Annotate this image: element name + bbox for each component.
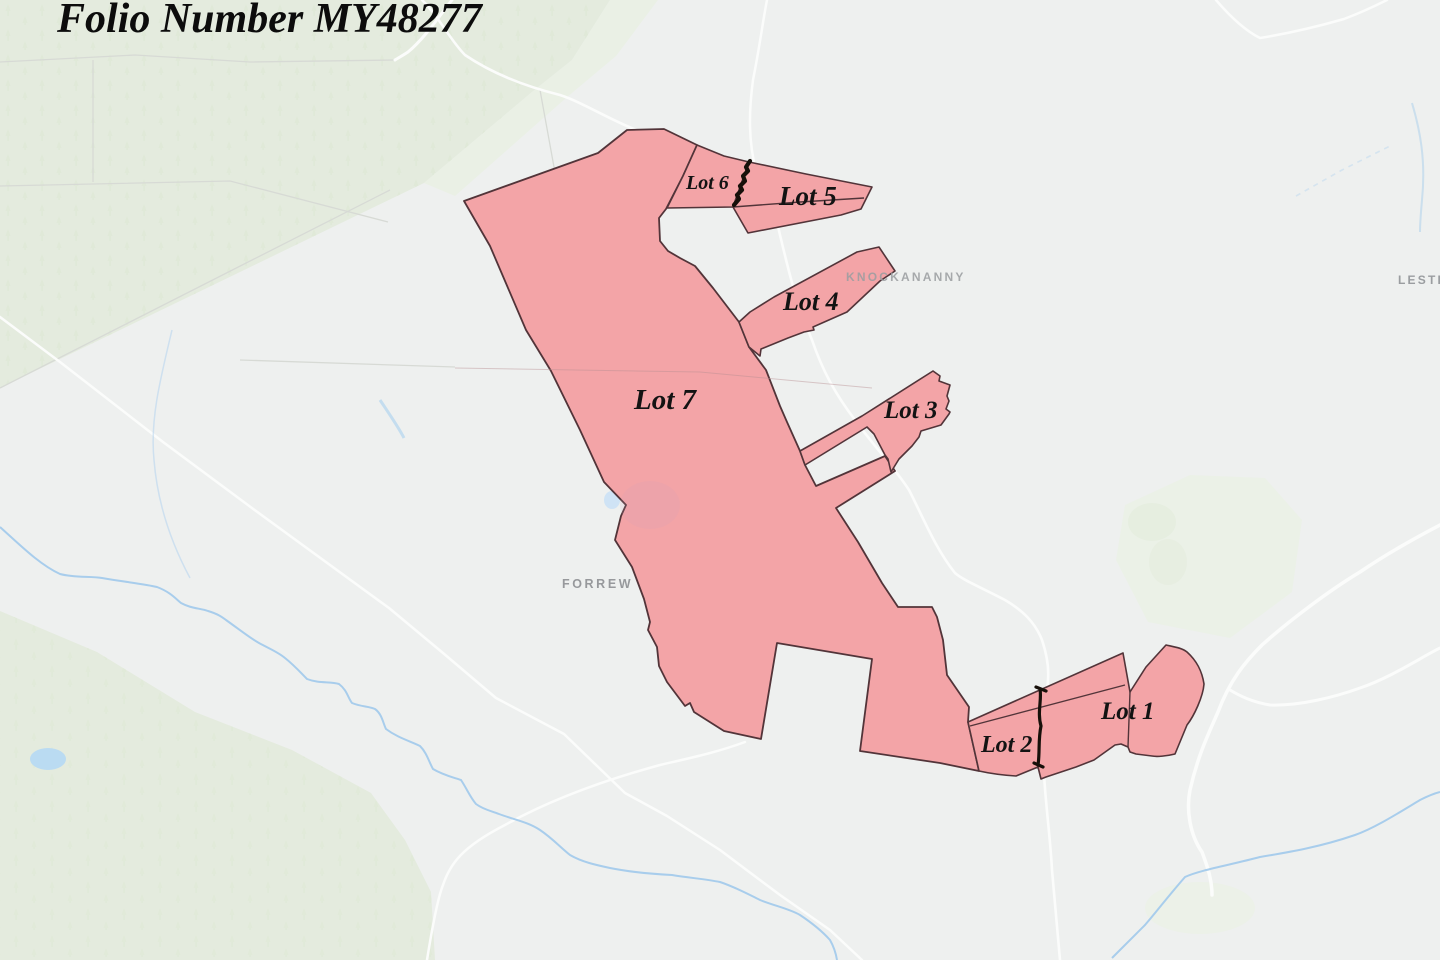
svg-text:Folio Number MY48277: Folio Number MY48277 xyxy=(56,0,484,42)
svg-text:LESTR: LESTR xyxy=(1398,273,1440,287)
svg-text:Lot 1: Lot 1 xyxy=(1100,698,1154,725)
svg-text:KNOCKANANNY: KNOCKANANNY xyxy=(846,270,966,284)
svg-text:Lot 2: Lot 2 xyxy=(980,732,1032,758)
svg-text:Lot 5: Lot 5 xyxy=(778,181,837,211)
svg-text:Lot 7: Lot 7 xyxy=(633,384,698,416)
svg-text:Lot 6: Lot 6 xyxy=(685,172,729,194)
svg-text:Lot 4: Lot 4 xyxy=(782,287,839,316)
svg-text:Lot 3: Lot 3 xyxy=(883,397,937,424)
svg-text:FORREW: FORREW xyxy=(562,577,633,591)
